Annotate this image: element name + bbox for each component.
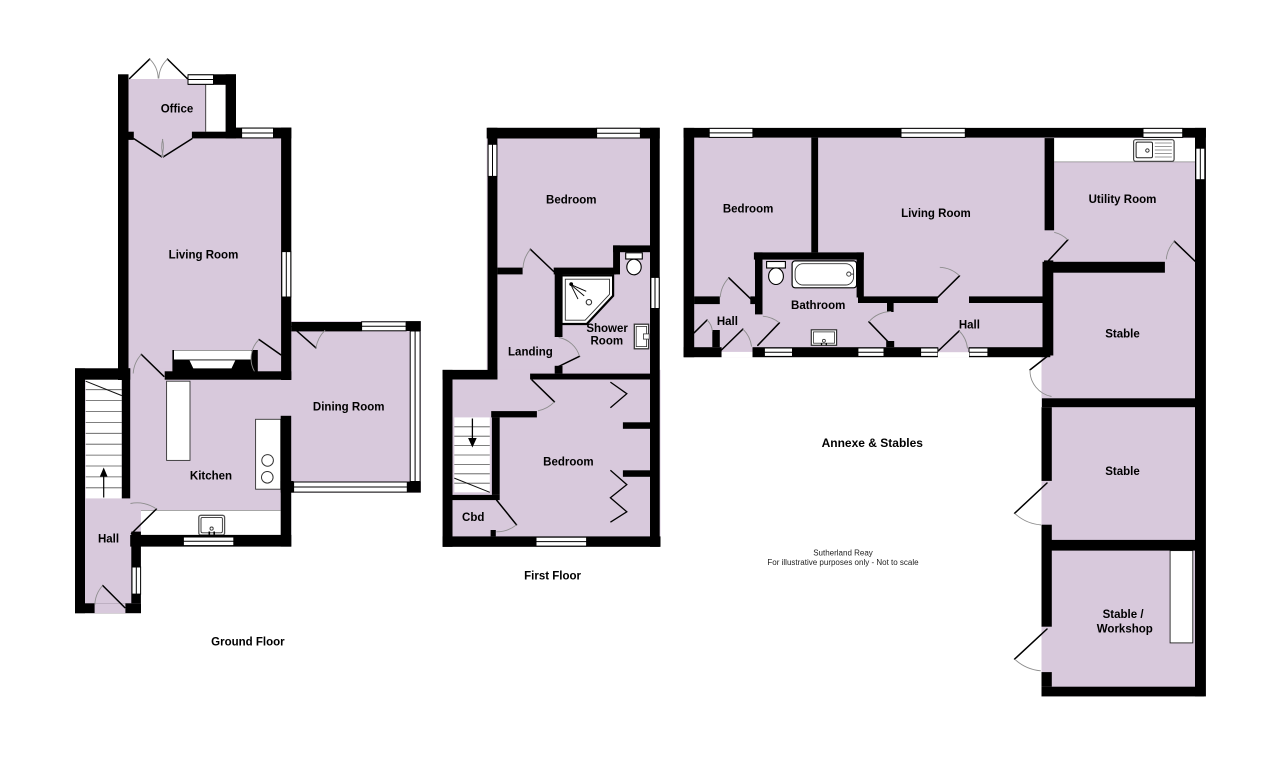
svg-text:For illustrative purposes only: For illustrative purposes only - Not to … [767, 558, 919, 567]
svg-text:Bathroom: Bathroom [791, 300, 845, 312]
svg-text:Utility Room: Utility Room [1089, 194, 1157, 206]
svg-text:Living Room: Living Room [169, 250, 239, 262]
svg-text:Hall: Hall [98, 533, 119, 545]
svg-text:Bedroom: Bedroom [723, 203, 773, 215]
svg-text:Landing: Landing [508, 346, 553, 358]
svg-text:Dining Room: Dining Room [313, 402, 385, 414]
svg-text:Sutherland Reay: Sutherland Reay [813, 549, 873, 558]
svg-text:Workshop: Workshop [1097, 624, 1153, 636]
svg-text:Hall: Hall [959, 319, 980, 331]
svg-text:Office: Office [161, 104, 194, 116]
svg-text:Shower: Shower [586, 323, 628, 335]
svg-text:Hall: Hall [717, 316, 738, 328]
svg-text:Cbd: Cbd [462, 512, 484, 524]
svg-text:Stable: Stable [1105, 328, 1140, 340]
svg-text:Ground Floor: Ground Floor [211, 637, 285, 649]
svg-text:Bedroom: Bedroom [546, 194, 596, 206]
svg-text:Stable: Stable [1105, 466, 1140, 478]
svg-text:Room: Room [591, 336, 624, 348]
svg-text:Kitchen: Kitchen [190, 471, 232, 483]
svg-text:Living Room: Living Room [901, 208, 971, 220]
svg-text:Bedroom: Bedroom [543, 456, 593, 468]
svg-text:First Floor: First Floor [524, 571, 581, 583]
svg-text:Stable /: Stable / [1103, 609, 1145, 621]
svg-text:Annexe & Stables: Annexe & Stables [822, 436, 924, 450]
